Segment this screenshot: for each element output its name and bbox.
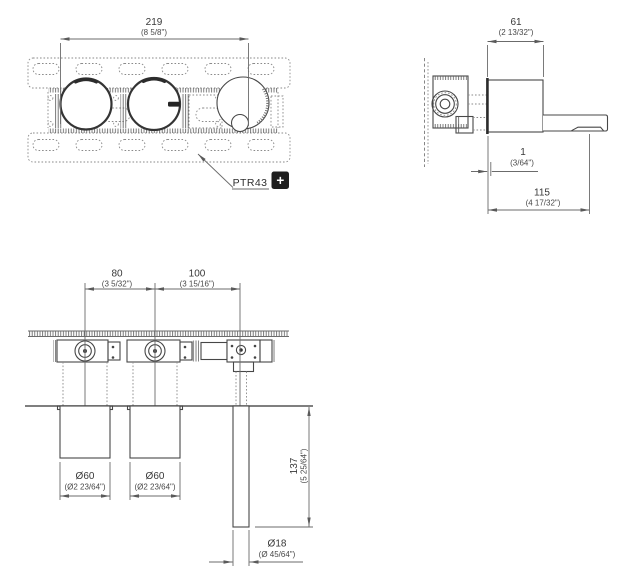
dim-spout-drop-mm: 137: [289, 457, 300, 474]
right-handle-knob: [128, 78, 180, 130]
dim-wall-gap-mm: 1: [520, 147, 526, 158]
dim-handle-diameter-right: Ø60 (Ø2 23/64"): [130, 462, 180, 500]
dim-handle-dia-left-mm: Ø60: [76, 471, 95, 482]
dim-spout-offset-mm: 100: [189, 269, 206, 280]
dim-body-width-mm: 61: [510, 17, 522, 28]
rough-in-valve: [432, 76, 487, 133]
left-handle-knob: [61, 79, 112, 130]
plus-icon: +: [276, 173, 284, 188]
dim-spout-drop: 137 (5 25/64"): [255, 407, 313, 527]
dim-spout-dia-inch: (Ø 45/64"): [259, 550, 296, 559]
dim-spout-diameter: Ø18 (Ø 45/64"): [209, 530, 303, 566]
spout-escutcheon: [217, 77, 269, 132]
dim-body-width: 61 (2 13/32"): [488, 17, 544, 77]
spout-connection: [234, 362, 254, 372]
faucet-technical-drawing: 219 (8 5/8") PTR43 +: [0, 0, 618, 588]
left-handle-plan: [58, 406, 113, 458]
dim-spout-reach-inch: (4 17/32"): [526, 199, 561, 208]
mixer-body-side: [487, 78, 607, 134]
dim-handle-dia-left-inch: (Ø2 23/64"): [64, 483, 105, 492]
dim-spout-offset-inch: (3 15/16"): [180, 280, 215, 289]
spout-outlet-circle: [232, 115, 249, 132]
product-label: PTR43 +: [198, 154, 289, 189]
dim-body-width-inch: (2 13/32"): [499, 28, 534, 37]
dim-spout-drop-inch: (5 25/64"): [300, 448, 309, 483]
dim-handle-spacing: 80 (3 5/32") 100 (3 15/16"): [85, 269, 240, 407]
wall-section-line: [425, 58, 429, 167]
leader-arrow: [198, 154, 233, 188]
dim-handle-spacing-inch: (3 5/32"): [102, 280, 133, 289]
dim-overall-width-mm: 219: [146, 17, 163, 28]
dim-spout-dia-mm: Ø18: [268, 539, 287, 550]
drawing-canvas: 219 (8 5/8") PTR43 +: [0, 0, 618, 588]
side-view: 61 (2 13/32") 1 (3/64") 115 (4 17/32"): [425, 17, 608, 214]
dim-overall-width-inch: (8 5/8"): [141, 28, 167, 37]
dim-handle-dia-right-inch: (Ø2 23/64"): [134, 483, 175, 492]
dim-spout-reach: 115 (4 17/32"): [488, 134, 590, 214]
dim-spout-reach-mm: 115: [534, 188, 550, 199]
dim-handle-dia-right-mm: Ø60: [146, 471, 165, 482]
plus-badge: +: [272, 172, 290, 190]
plan-view: 80 (3 5/32") 100 (3 15/16") Ø60 (Ø2 23/6…: [25, 269, 313, 567]
dim-handle-diameter-left: Ø60 (Ø2 23/64"): [60, 462, 110, 500]
concealed-valve-plan: [28, 331, 289, 406]
front-view: 219 (8 5/8") PTR43 +: [28, 17, 290, 189]
product-code: PTR43: [233, 177, 268, 189]
right-handle-plan: [128, 406, 183, 458]
dim-wall-gap-inch: (3/64"): [510, 159, 534, 168]
dim-handle-spacing-mm: 80: [111, 269, 123, 280]
mounting-plate-edge: [28, 331, 289, 337]
spout-tube: [233, 406, 249, 527]
temperature-indicator-mark: [168, 102, 180, 107]
